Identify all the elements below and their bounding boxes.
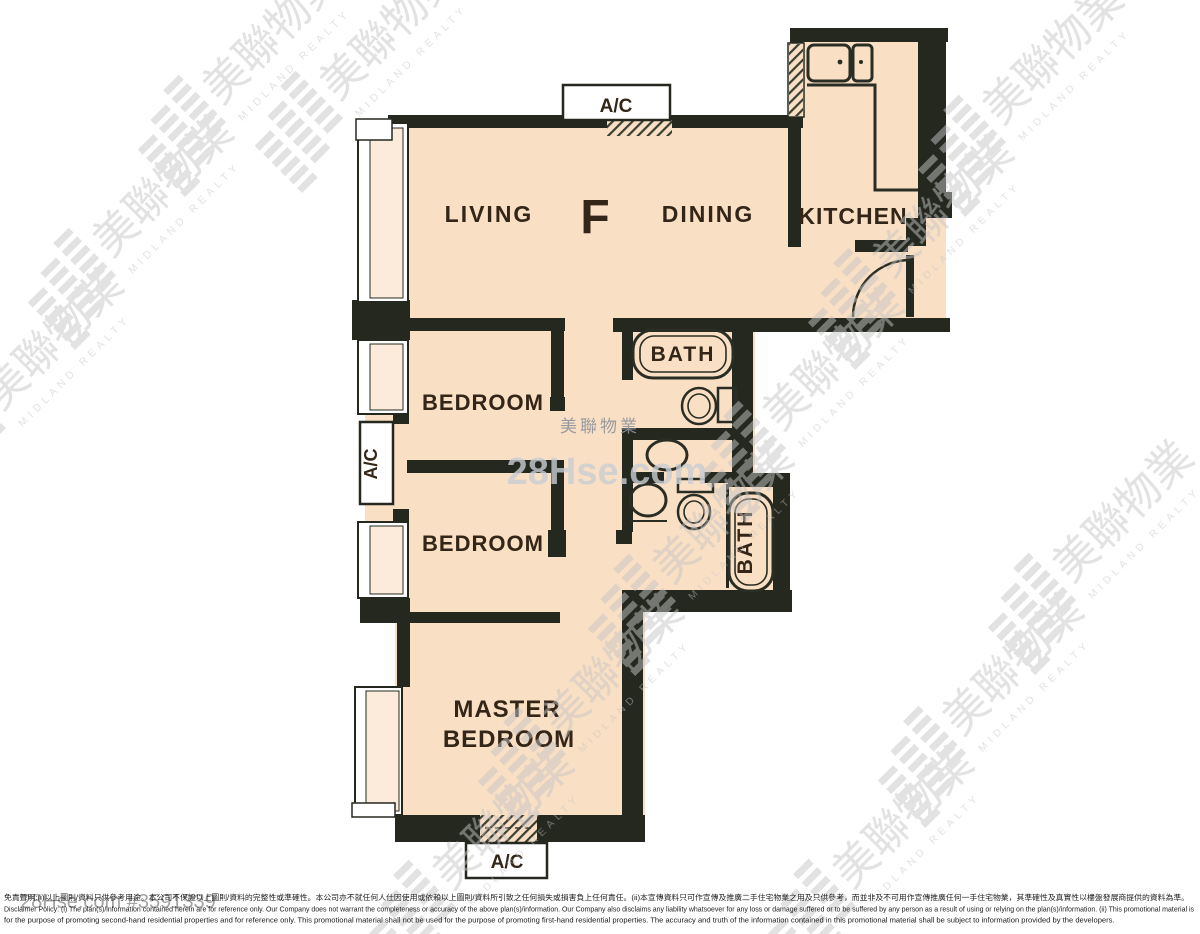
ac-top-hatch <box>607 120 672 136</box>
center-watermark-site: 28Hse.com <box>507 451 708 493</box>
window-corner-step <box>356 119 392 140</box>
footer: 28Hse.com #3591339 免責聲明:(i)以上圖則/資料只供參考用途… <box>4 891 1194 925</box>
wall <box>393 509 409 522</box>
midland-watermark <box>0 251 153 503</box>
label-bedroom-2: BEDROOM <box>422 531 544 556</box>
wall <box>397 623 410 687</box>
wall <box>352 300 410 340</box>
wall <box>360 598 410 623</box>
master-bay-window-pane <box>366 691 399 811</box>
label-ac-top: A/C <box>600 96 633 117</box>
living-bay-window-pane <box>370 128 403 298</box>
disclaimer-line-en-1: Disclaimer Policy: (i) The plan(s)/infor… <box>4 905 1194 914</box>
label-ac-left: A/C <box>361 449 381 480</box>
label-living: LIVING <box>445 201 534 227</box>
window-corner-step <box>352 803 395 817</box>
wall-bath1-left <box>622 322 633 380</box>
bedroom1-door-leaf <box>550 397 565 411</box>
wall-bedroom1-top <box>407 318 565 331</box>
bath2-door-leaf <box>616 530 632 544</box>
wall-dining-kitchen-divider <box>788 127 801 247</box>
center-watermark-cn: 美聯物業 <box>560 417 640 436</box>
label-dining: DINING <box>662 201 755 227</box>
disclaimer-line-en-2: for the purpose of promoting second-hand… <box>4 916 1115 925</box>
floor-plan-page: 美聯物業 MIDLAND REALTY <box>0 0 1200 934</box>
bedroom2-door-leaf <box>548 530 566 557</box>
label-bedroom-1: BEDROOM <box>422 390 544 415</box>
label-unit: F <box>580 191 609 244</box>
bedroom1-bay-window-pane <box>370 344 403 410</box>
midland-watermark <box>751 729 1003 934</box>
wall-bedroom2-bottom <box>397 612 560 623</box>
disclaimer-line-cn: 免責聲明:(i)以上圖則/資料只供參考用途。本公司不保證以上圖則/資料的完整性或… <box>4 893 1189 902</box>
label-bath-1: BATH <box>651 343 716 366</box>
kitchen-window-louver <box>789 44 803 116</box>
floor-plan-canvas: 美聯物業 MIDLAND REALTY <box>0 0 1200 934</box>
bedroom2-bay-window-pane <box>370 526 403 594</box>
